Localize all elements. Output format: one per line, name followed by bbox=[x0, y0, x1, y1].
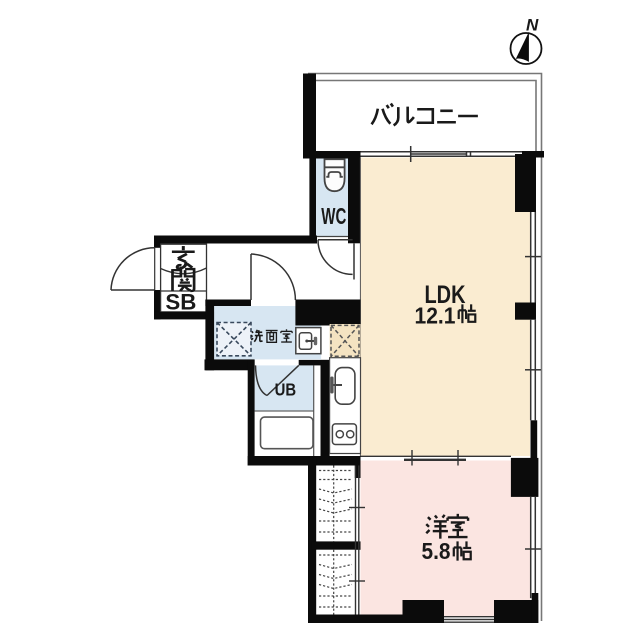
svg-text:SB: SB bbox=[165, 290, 196, 315]
svg-text:12.1: 12.1 bbox=[415, 302, 456, 328]
svg-text:WC: WC bbox=[321, 203, 346, 229]
svg-text:UB: UB bbox=[275, 380, 297, 400]
svg-text:N: N bbox=[526, 16, 539, 35]
svg-text:5.8: 5.8 bbox=[422, 538, 451, 564]
